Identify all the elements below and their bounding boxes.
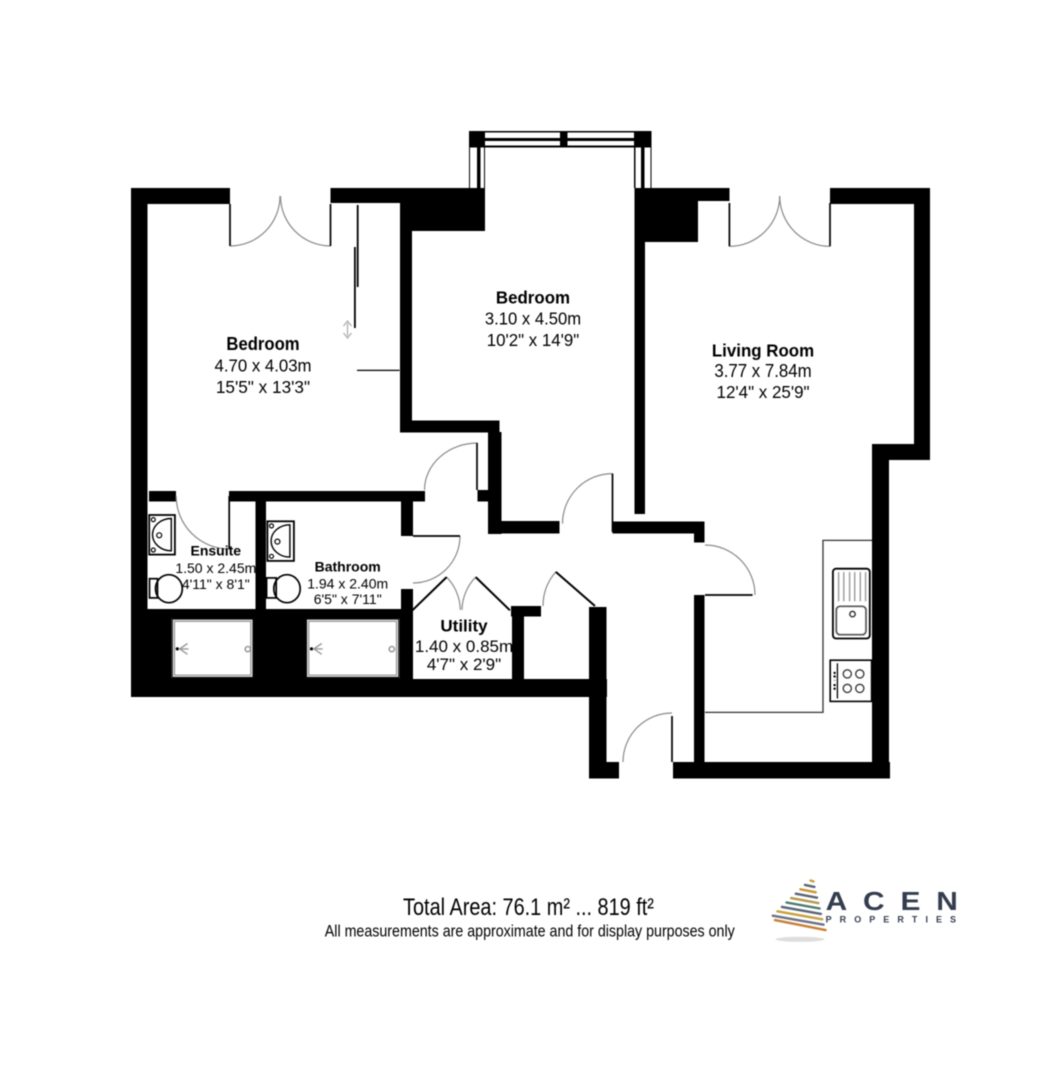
svg-text:ACEN: ACEN bbox=[826, 887, 974, 916]
svg-text:Bedroom: Bedroom bbox=[496, 287, 570, 308]
svg-text:4.70 x 4.03m: 4.70 x 4.03m bbox=[215, 355, 312, 376]
svg-text:1.94 x 2.40m: 1.94 x 2.40m bbox=[307, 575, 388, 591]
svg-text:3.10 x 4.50m: 3.10 x 4.50m bbox=[485, 308, 581, 329]
svg-text:4'7" x 2'9": 4'7" x 2'9" bbox=[427, 655, 501, 674]
svg-text:Living Room: Living Room bbox=[712, 340, 814, 361]
svg-text:15'5" x 13'3": 15'5" x 13'3" bbox=[216, 377, 310, 397]
svg-text:Ensuite: Ensuite bbox=[191, 542, 242, 558]
svg-text:Total Area: 76.1 m² ... 819 ft: Total Area: 76.1 m² ... 819 ft² bbox=[403, 893, 654, 920]
svg-text:1.40 x 0.85m: 1.40 x 0.85m bbox=[415, 637, 513, 656]
svg-text:PROPERTIES: PROPERTIES bbox=[826, 915, 965, 925]
svg-text:1.50 x 2.45m: 1.50 x 2.45m bbox=[175, 560, 256, 576]
svg-text:Bathroom: Bathroom bbox=[315, 558, 381, 574]
svg-text:12'4" x 25'9": 12'4" x 25'9" bbox=[717, 381, 810, 402]
svg-text:Utility: Utility bbox=[440, 617, 488, 636]
svg-text:3.77 x 7.84m: 3.77 x 7.84m bbox=[714, 361, 811, 382]
svg-text:All measurements are approxima: All measurements are approximate and for… bbox=[325, 923, 735, 941]
svg-text:10'2" x 14'9": 10'2" x 14'9" bbox=[487, 329, 579, 350]
svg-text:Bedroom: Bedroom bbox=[226, 333, 299, 354]
svg-text:6'5" x 7'11": 6'5" x 7'11" bbox=[314, 591, 382, 607]
svg-text:4'11" x 8'1": 4'11" x 8'1" bbox=[182, 576, 250, 592]
